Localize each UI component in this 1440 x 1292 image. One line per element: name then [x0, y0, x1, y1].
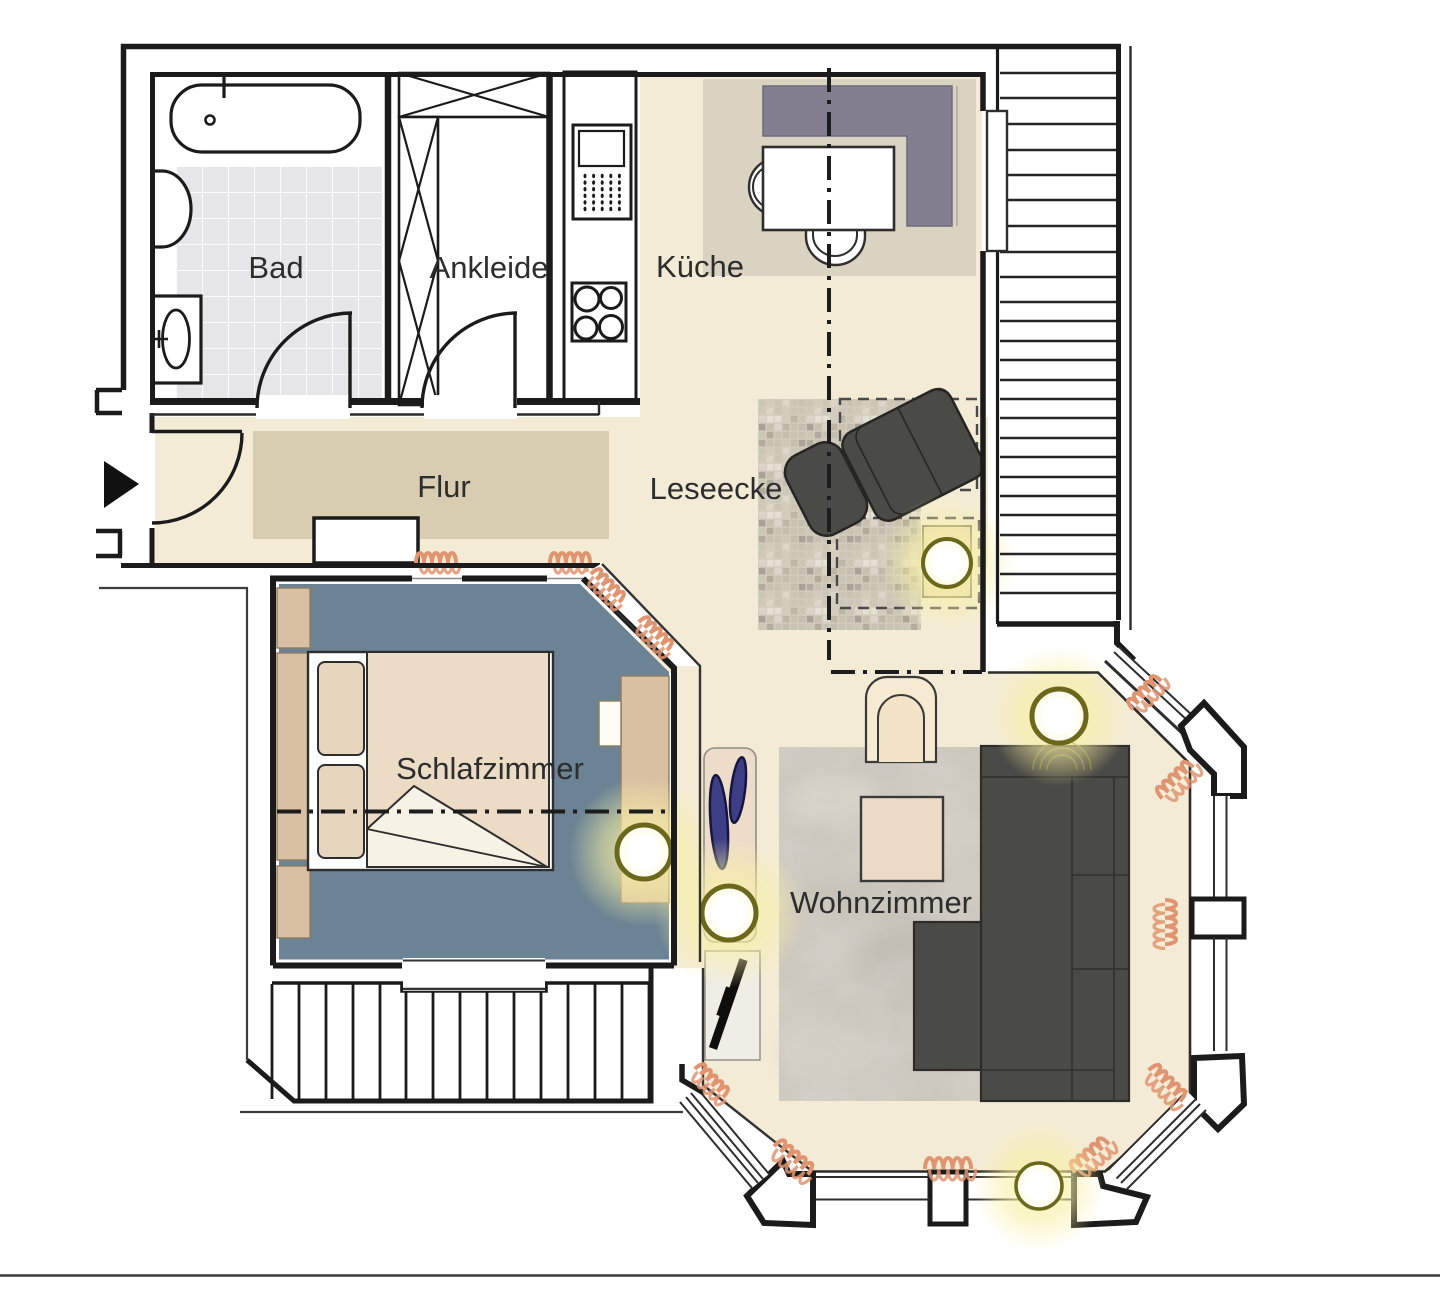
svg-text:Wohnzimmer: Wohnzimmer	[790, 885, 972, 920]
svg-text:Bad: Bad	[248, 250, 303, 285]
svg-text:Küche: Küche	[656, 249, 744, 284]
svg-text:Leseecke: Leseecke	[650, 471, 783, 506]
svg-text:Ankleide: Ankleide	[430, 250, 549, 285]
svg-text:Schlafzimmer: Schlafzimmer	[396, 751, 584, 786]
svg-text:Flur: Flur	[417, 469, 470, 504]
